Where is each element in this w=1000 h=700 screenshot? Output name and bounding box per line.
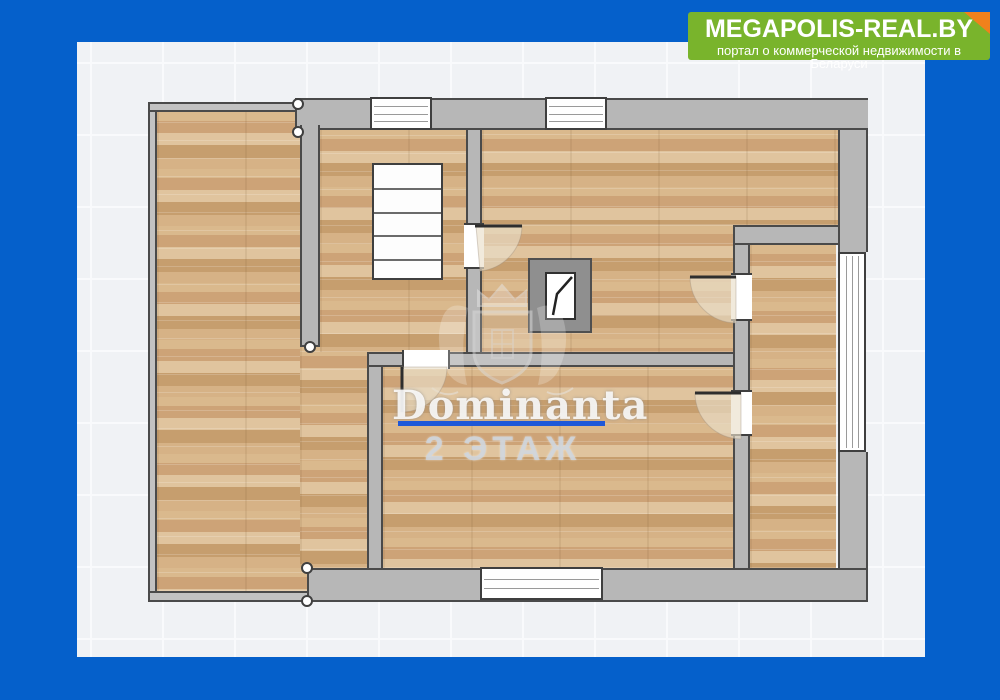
window-mullion: [852, 256, 853, 448]
stair-tread-line: [374, 212, 441, 214]
chimney-flue-window: [545, 272, 576, 320]
stair-tread-line: [374, 188, 441, 190]
wall-endpoint-marker: [292, 126, 304, 138]
window-mullion: [846, 256, 847, 448]
window-mullion: [858, 256, 859, 448]
window: [545, 97, 607, 130]
wall-segment: [367, 352, 402, 367]
wall-segment: [733, 436, 750, 568]
room-floor: [482, 225, 733, 352]
site-logo-title: MEGAPOLIS-REAL.BY: [688, 14, 990, 44]
wall-segment: [733, 225, 838, 245]
wall-endpoint-marker: [301, 562, 313, 574]
wall-segment: [733, 245, 750, 275]
wall-segment: [466, 267, 482, 352]
wall-segment: [733, 320, 750, 390]
wall-endpoint-marker: [301, 595, 313, 607]
room-floor: [157, 112, 307, 591]
window: [480, 567, 603, 600]
wall-segment: [148, 112, 157, 591]
wall-segment: [148, 591, 307, 602]
window-mullion: [484, 588, 599, 589]
door-opening: [731, 390, 752, 436]
wall-segment: [148, 102, 298, 112]
floorplan: [0, 0, 1000, 700]
window-mullion: [549, 114, 603, 115]
window: [370, 97, 432, 130]
screenshot-stage: Dominanta 2 ЭТАЖ MEGAPOLIS-REAL.BY порта…: [0, 0, 1000, 700]
room-floor: [482, 130, 838, 225]
floor-label: 2 ЭТАЖ: [398, 430, 608, 469]
stair-tread-line: [374, 235, 441, 237]
window-mullion: [374, 106, 428, 107]
window-mullion: [549, 121, 603, 122]
room-floor: [300, 347, 368, 568]
wall-segment: [838, 452, 868, 568]
wall-segment: [466, 130, 482, 223]
door-opening: [464, 223, 484, 269]
wall-segment: [367, 367, 383, 568]
door-opening: [731, 273, 752, 321]
wall-endpoint-marker: [292, 98, 304, 110]
watermark-underline: [398, 421, 605, 426]
room-floor: [750, 245, 836, 568]
wall-segment: [300, 125, 320, 347]
wall-segment: [838, 130, 868, 252]
window-mullion: [549, 106, 603, 107]
window-mullion: [484, 579, 599, 580]
stair-tread-line: [374, 259, 441, 261]
window: [838, 252, 866, 452]
site-logo: MEGAPOLIS-REAL.BY портал о коммерческой …: [688, 12, 990, 60]
site-logo-subtitle: портал о коммерческой недвижимости в Бел…: [688, 44, 990, 70]
stairs: [372, 163, 443, 280]
window-mullion: [374, 121, 428, 122]
door-opening: [402, 350, 450, 369]
wall-endpoint-marker: [304, 341, 316, 353]
window-mullion: [374, 114, 428, 115]
wall-segment: [450, 352, 737, 367]
